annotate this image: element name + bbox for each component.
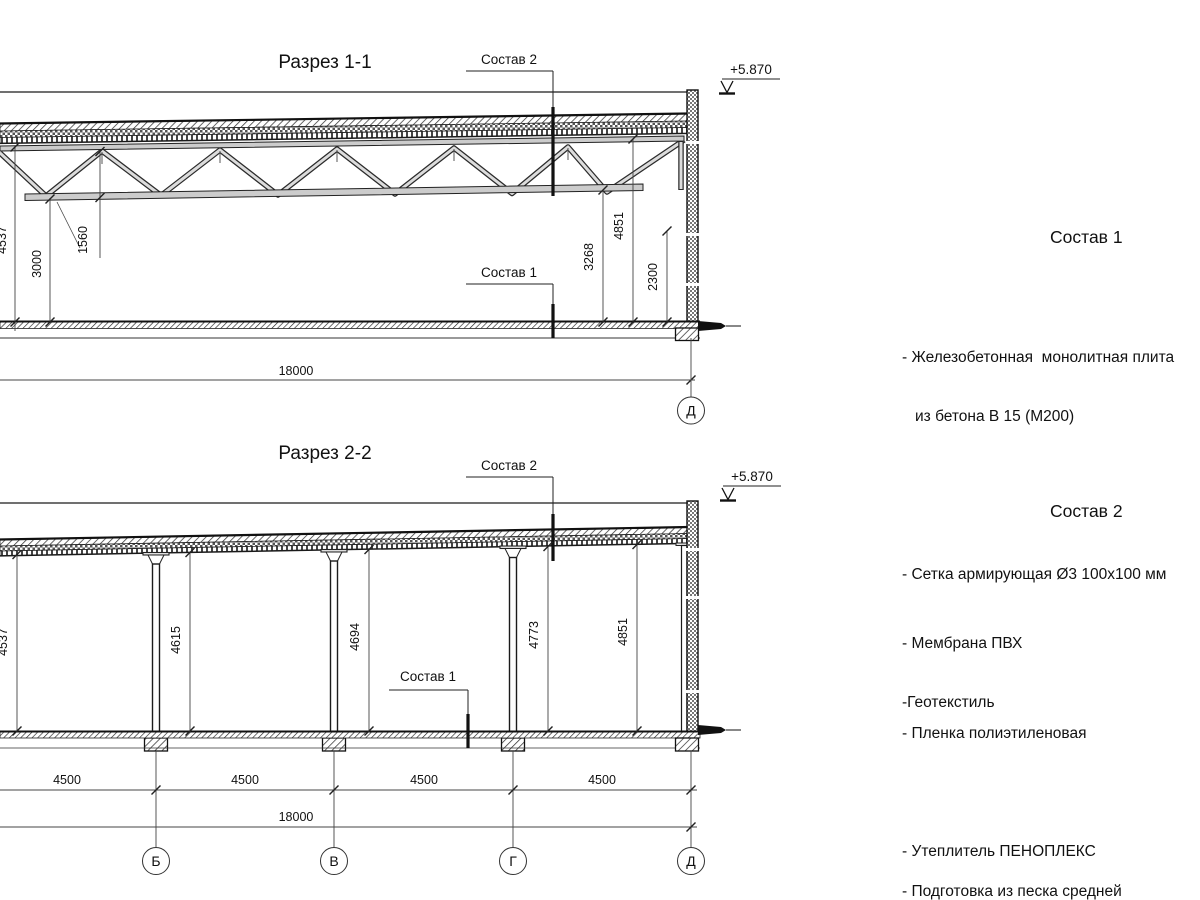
dim-h-4694-label: 4694 bbox=[348, 623, 362, 651]
dim-bay1-label: 4500 bbox=[53, 773, 81, 787]
bay-dimensions: 4500 4500 4500 4500 bbox=[0, 751, 697, 847]
list-item: - Утеплитель ПЕНОПЛЕКС толщиной 50 мм bbox=[902, 803, 1200, 900]
sections-svg: Разрез 1-1 bbox=[0, 0, 800, 900]
elevation-arrow-icon-2 bbox=[722, 488, 734, 500]
steel-truss bbox=[0, 136, 684, 201]
elevation-mark-2: +5.870 bbox=[720, 469, 781, 501]
elevation-value-2: +5.870 bbox=[731, 469, 773, 484]
dim-bay2-label: 4500 bbox=[231, 773, 259, 787]
dim-span2-label: 18000 bbox=[279, 810, 314, 824]
legend2-title: Состав 2 bbox=[1050, 501, 1200, 522]
legend-sostav-2: Состав 2 - Мембрана ПВХ -Геотекстиль - У… bbox=[890, 462, 1200, 900]
dim-1560-label: 1560 bbox=[76, 226, 90, 254]
dim-3268-label: 3268 bbox=[582, 243, 596, 271]
dim-h-4851-label: 4851 bbox=[616, 618, 630, 646]
list-item: - Мембрана ПВХ -Геотекстиль bbox=[902, 595, 1200, 751]
dimensions-vertical bbox=[15, 139, 667, 331]
callout-sostav1-label-2: Состав 1 bbox=[400, 669, 456, 684]
elevation-arrow-icon bbox=[721, 81, 733, 93]
elevation-value: +5.870 bbox=[730, 62, 772, 77]
section1-title: Разрез 1-1 bbox=[278, 52, 371, 73]
dim-h-4615-label: 4615 bbox=[169, 626, 183, 654]
wall-footing bbox=[676, 328, 699, 341]
dim-h-4537-label: 4537 bbox=[0, 628, 10, 656]
callout-sostav2-label: Состав 2 bbox=[481, 52, 537, 67]
column-b bbox=[143, 553, 169, 752]
floor-console bbox=[698, 321, 726, 331]
columns bbox=[143, 543, 688, 751]
grid-bubbles: Б В Г Д bbox=[143, 848, 705, 875]
section-1-1-drawing: Разрез 1-1 bbox=[0, 52, 780, 424]
dim-bay3-label: 4500 bbox=[410, 773, 438, 787]
dim-bay4-label: 4500 bbox=[588, 773, 616, 787]
floor-console-2 bbox=[698, 725, 726, 735]
dim-4851-label: 4851 bbox=[612, 212, 626, 240]
dim-2300-label: 2300 bbox=[646, 263, 660, 291]
callout-sostav2-label-2: Состав 2 bbox=[481, 458, 537, 473]
list-item: - Железобетонная монолитная плита из бет… bbox=[902, 309, 1200, 465]
grid-bubble-d1: Д bbox=[678, 397, 705, 424]
column-v bbox=[321, 550, 347, 752]
drawing-sheet: Разрез 1-1 bbox=[0, 0, 1200, 900]
grid-letter-v: В bbox=[329, 853, 338, 869]
truss-bottom-chord bbox=[25, 184, 643, 201]
wall-footing-2 bbox=[676, 738, 699, 751]
wall-pilaster bbox=[676, 543, 688, 732]
elevation-mark: +5.870 bbox=[719, 62, 780, 94]
span-dimension: 18000 bbox=[0, 338, 695, 397]
grid-letter-d: Д bbox=[686, 853, 696, 869]
callout-sostav1-label: Состав 1 bbox=[481, 265, 537, 280]
legend1-title: Состав 1 bbox=[1050, 227, 1200, 248]
height-dimensions bbox=[17, 544, 637, 732]
dim-4537-label: 4537 bbox=[0, 226, 9, 254]
dim-3000-label: 3000 bbox=[30, 250, 44, 278]
column-g bbox=[500, 546, 526, 751]
span-dimension-2: 18000 bbox=[0, 810, 697, 832]
dim-span-label: 18000 bbox=[279, 364, 314, 378]
section2-title: Разрез 2-2 bbox=[278, 443, 371, 464]
grid-letter-g: Г bbox=[509, 853, 517, 869]
grid-letter-b: Б bbox=[151, 853, 160, 869]
right-wall bbox=[686, 90, 700, 338]
grid-letter: Д bbox=[686, 403, 696, 419]
right-wall-2 bbox=[686, 501, 700, 737]
floor-slab bbox=[0, 321, 741, 341]
section-2-2-drawing: Разрез 2-2 bbox=[0, 443, 781, 875]
height-dim-ticks bbox=[13, 540, 642, 736]
dim-h-4773-label: 4773 bbox=[527, 621, 541, 649]
